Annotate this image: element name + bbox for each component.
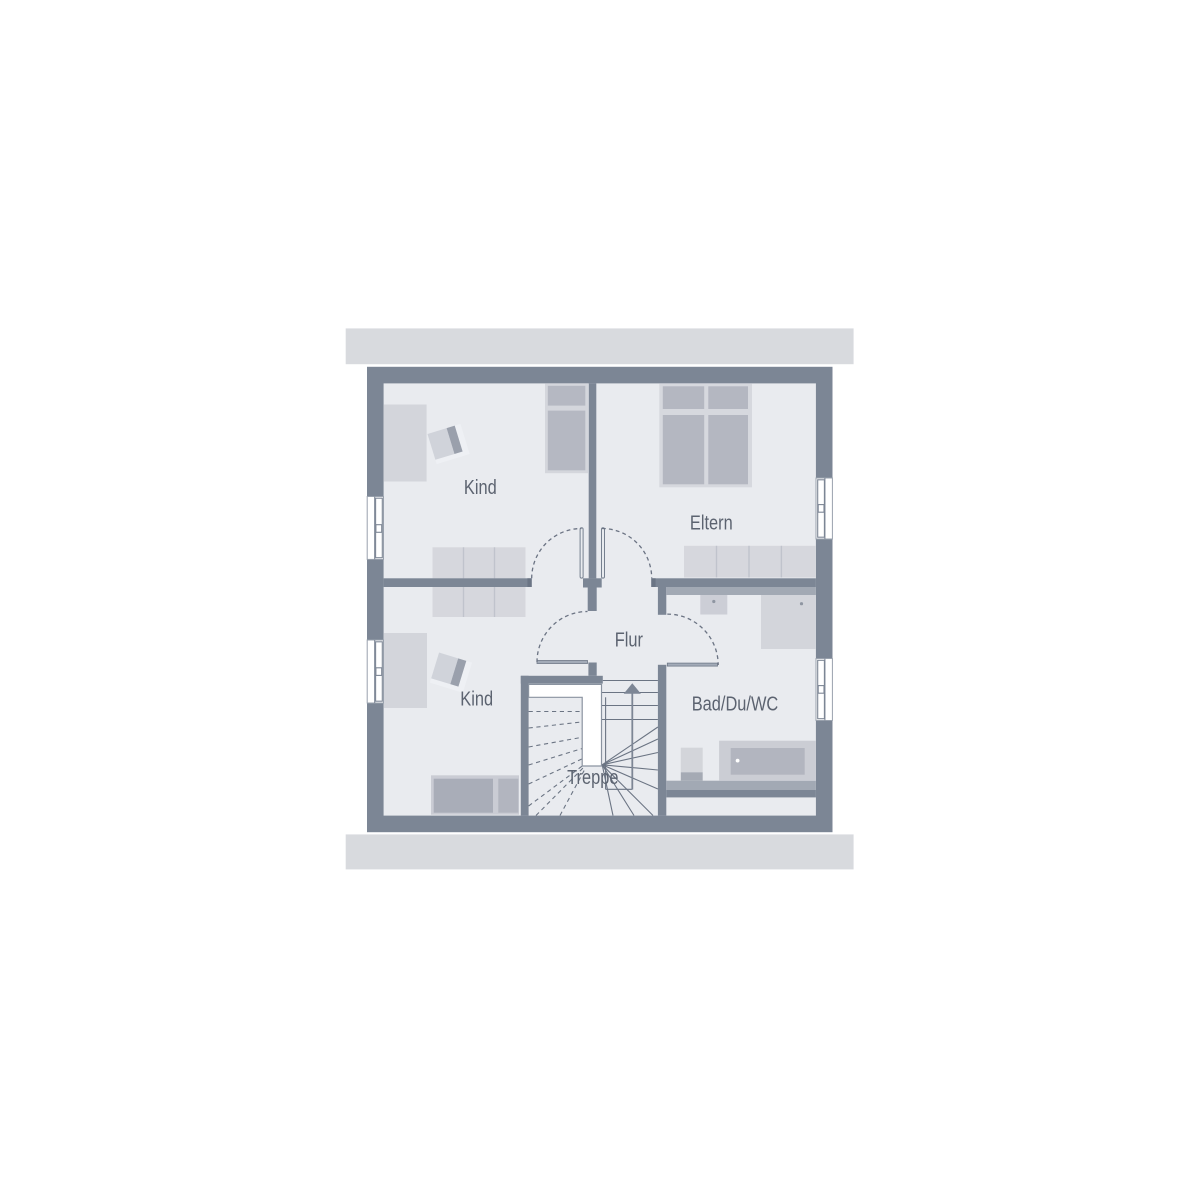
svg-text:Treppe: Treppe xyxy=(567,766,618,789)
svg-text:Kind: Kind xyxy=(464,476,497,499)
svg-text:Flur: Flur xyxy=(615,628,643,651)
svg-text:Eltern: Eltern xyxy=(690,511,733,534)
svg-text:Bad/Du/WC: Bad/Du/WC xyxy=(692,692,778,715)
svg-text:Kind: Kind xyxy=(460,687,493,710)
